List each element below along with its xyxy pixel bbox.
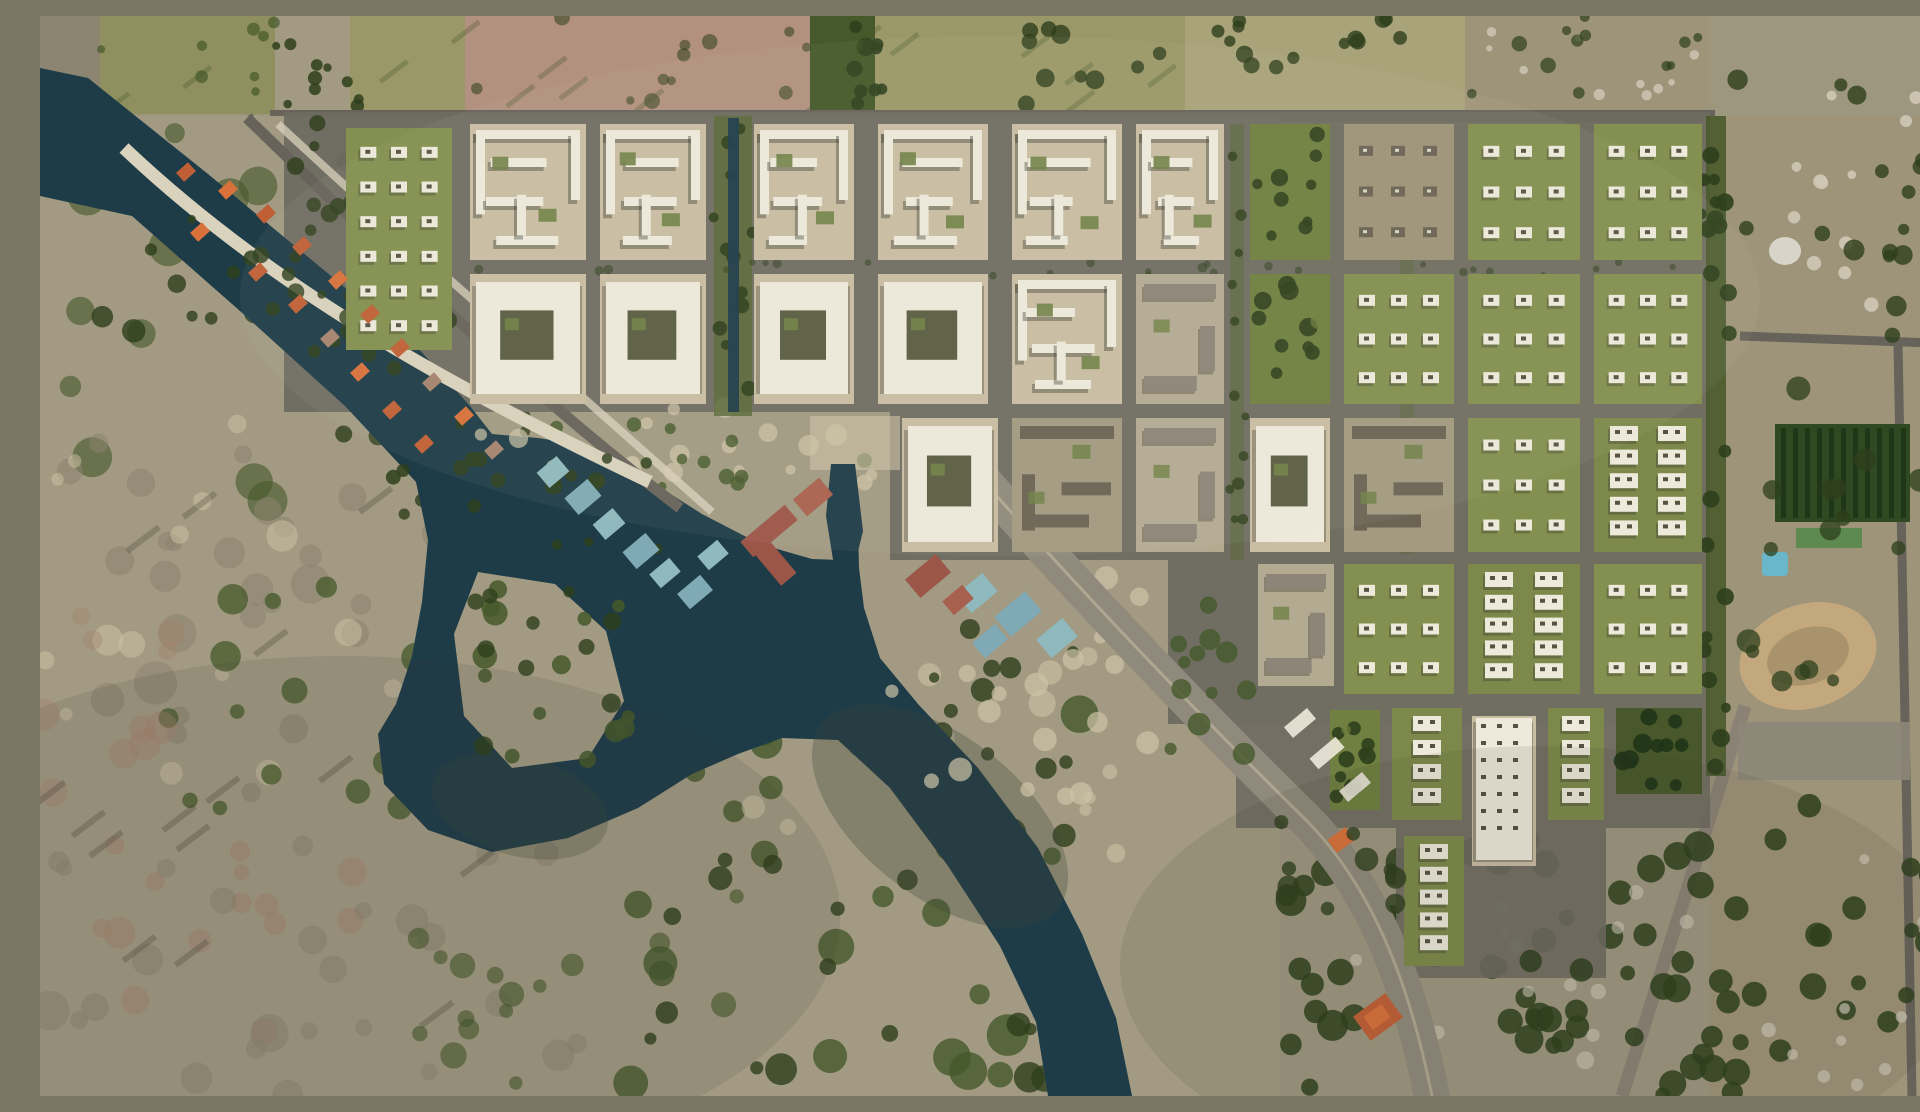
aerial-masterplan-map [40, 16, 1920, 1096]
screenshot-root: Aerial masterplan render — riverfront ci… [40, 16, 1920, 1096]
